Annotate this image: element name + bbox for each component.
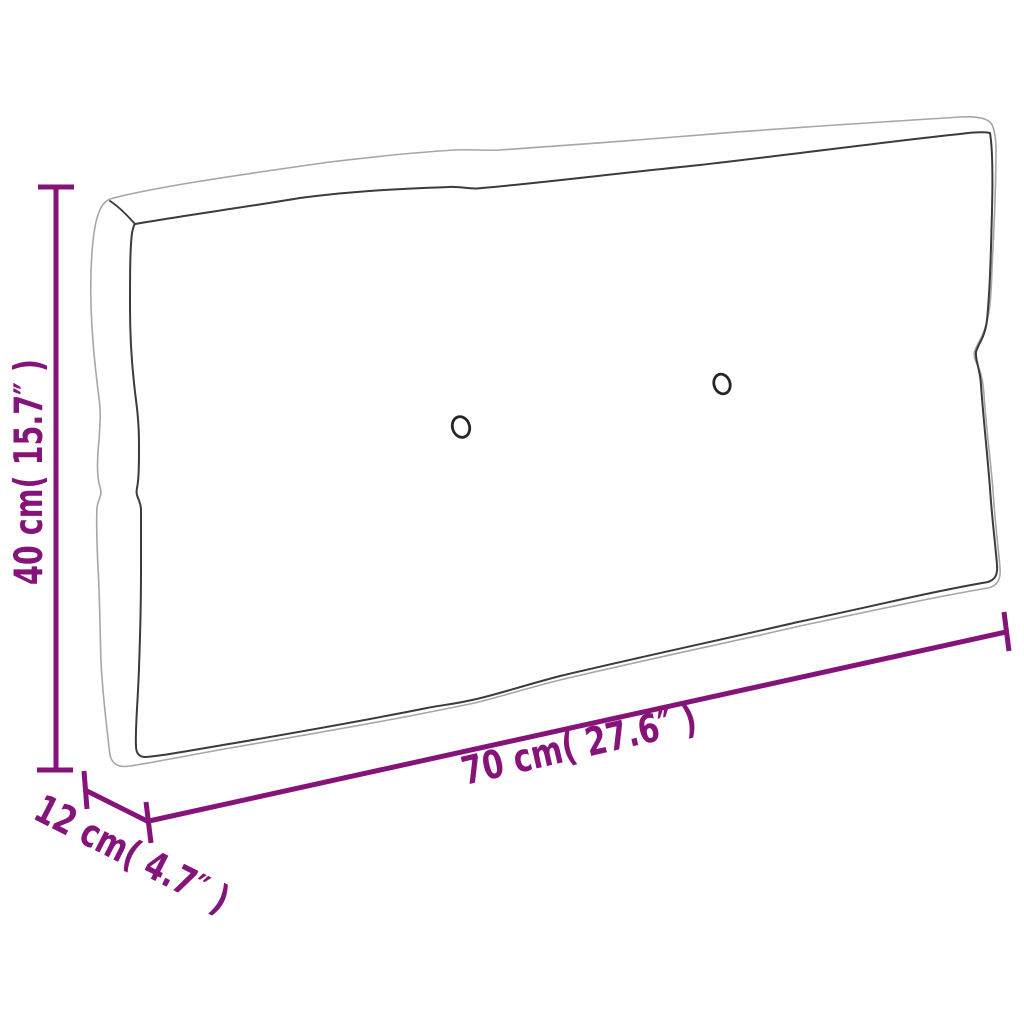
dimension-labels: 40 cm( 15.7″ ) 12 cm( 4.7″ ) 70 cm( 27.6… xyxy=(7,359,701,923)
width-right-tick xyxy=(1004,612,1009,651)
width-dimension-label: 70 cm( 27.6″ ) xyxy=(457,697,701,795)
diagram-canvas: 40 cm( 15.7″ ) 12 cm( 4.7″ ) 70 cm( 27.6… xyxy=(0,0,1024,1024)
height-dimension-label: 40 cm( 15.7″ ) xyxy=(7,359,52,585)
cushion xyxy=(91,117,1000,767)
cushion-silhouette xyxy=(91,117,1000,767)
dimension-diagram-svg: 40 cm( 15.7″ ) 12 cm( 4.7″ ) 70 cm( 27.6… xyxy=(0,0,1024,1024)
button-icon xyxy=(450,414,473,439)
button-icon xyxy=(711,372,732,396)
cushion-corner-crease xyxy=(110,201,135,224)
